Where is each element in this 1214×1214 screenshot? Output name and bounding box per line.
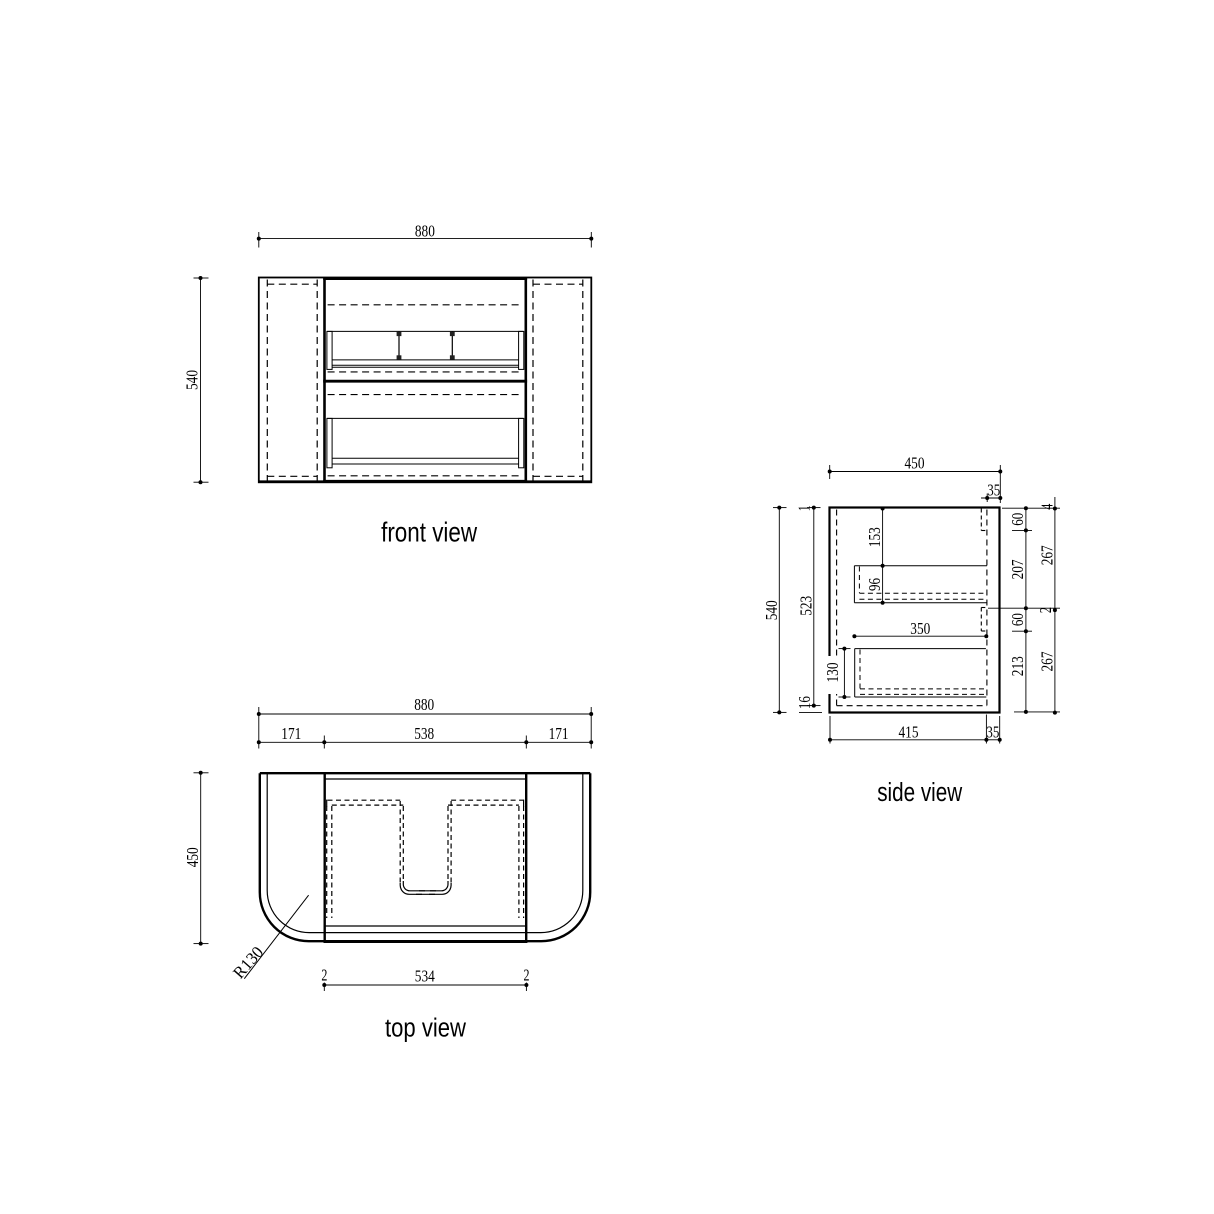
- svg-text:450: 450: [905, 453, 925, 472]
- svg-text:60: 60: [1008, 613, 1027, 626]
- svg-text:171: 171: [281, 724, 301, 743]
- svg-text:213: 213: [1008, 656, 1027, 676]
- svg-text:880: 880: [415, 221, 435, 240]
- svg-text:4: 4: [1037, 503, 1056, 509]
- svg-text:96: 96: [865, 578, 884, 591]
- svg-text:2: 2: [321, 966, 327, 985]
- svg-text:top view: top view: [385, 1015, 467, 1043]
- svg-text:450: 450: [183, 847, 202, 867]
- svg-text:171: 171: [549, 724, 569, 743]
- svg-text:538: 538: [414, 724, 434, 743]
- svg-text:16: 16: [795, 696, 814, 709]
- svg-text:1: 1: [795, 505, 814, 511]
- svg-text:2: 2: [1036, 607, 1055, 613]
- svg-text:350: 350: [910, 619, 930, 638]
- svg-text:534: 534: [415, 967, 435, 986]
- svg-text:267: 267: [1038, 545, 1057, 565]
- svg-text:60: 60: [1008, 513, 1027, 526]
- svg-text:35: 35: [986, 722, 999, 741]
- svg-text:side view: side view: [877, 779, 962, 807]
- svg-text:35: 35: [987, 480, 1000, 499]
- svg-text:880: 880: [414, 695, 434, 714]
- svg-text:130: 130: [823, 663, 842, 683]
- svg-text:207: 207: [1008, 559, 1027, 579]
- svg-text:2: 2: [524, 966, 530, 985]
- svg-text:153: 153: [865, 527, 884, 547]
- svg-text:540: 540: [762, 600, 781, 620]
- svg-text:540: 540: [183, 370, 202, 390]
- svg-text:523: 523: [796, 596, 815, 616]
- svg-text:415: 415: [899, 722, 919, 741]
- svg-text:267: 267: [1038, 651, 1057, 671]
- svg-text:front view: front view: [381, 516, 477, 547]
